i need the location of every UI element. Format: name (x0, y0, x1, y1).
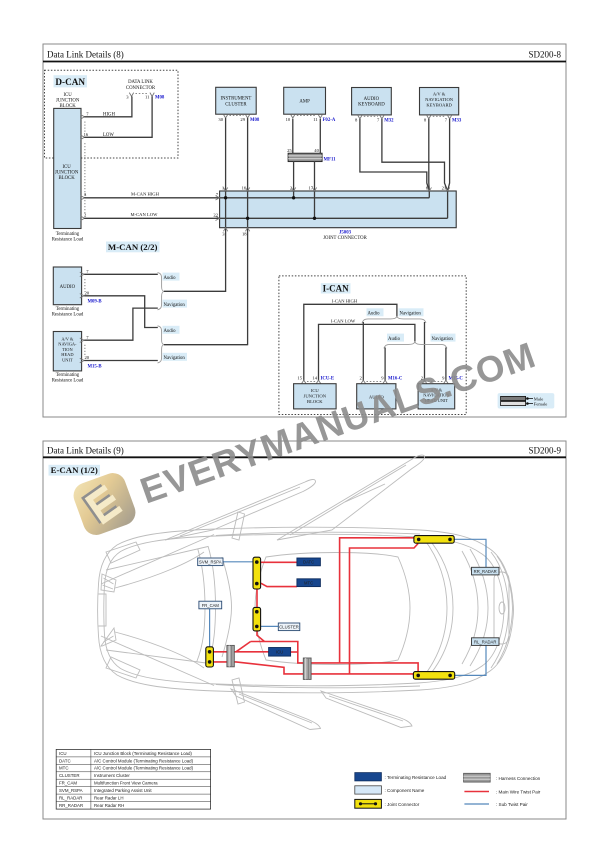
svg-text:40: 40 (314, 148, 319, 153)
svg-text:Resistance Load: Resistance Load (52, 313, 84, 318)
svg-text:: Sub Twist Pair: : Sub Twist Pair (496, 802, 528, 807)
svg-text:DATC: DATC (303, 560, 314, 565)
svg-text:11: 11 (313, 117, 318, 122)
svg-text:ICU-E: ICU-E (321, 376, 335, 381)
svg-text:11: 11 (145, 94, 150, 99)
svg-text:FR_CAM: FR_CAM (202, 603, 220, 608)
svg-text:8: 8 (424, 118, 427, 123)
svg-text:ICU Junction Block (Terminatin: ICU Junction Block (Terminating Resistan… (94, 751, 192, 756)
svg-text:JUNCTION: JUNCTION (55, 171, 79, 176)
svg-text:14: 14 (312, 375, 317, 380)
svg-text:A/C Control Module (Terminatin: A/C Control Module (Terminating Resistan… (94, 758, 194, 763)
svg-text:Data Link Details (8): Data Link Details (8) (47, 50, 124, 60)
svg-text:ICU: ICU (62, 165, 71, 170)
svg-text:DATC: DATC (59, 758, 71, 763)
svg-text:J5003: J5003 (339, 231, 352, 236)
svg-text:Audio: Audio (368, 312, 381, 317)
svg-text:MTC: MTC (59, 766, 69, 771)
svg-text:20: 20 (85, 290, 90, 295)
svg-text:JUNCTION: JUNCTION (304, 393, 327, 398)
svg-text:3: 3 (222, 231, 225, 236)
svg-text:30: 30 (218, 117, 223, 122)
svg-text:MTC: MTC (304, 581, 313, 586)
svg-text:Navigation: Navigation (164, 303, 186, 308)
svg-text:Navigation: Navigation (432, 337, 454, 342)
svg-text:A/V &: A/V & (433, 92, 446, 97)
svg-text:LOW: LOW (103, 133, 114, 138)
svg-text:2: 2 (84, 213, 87, 218)
svg-text:Navigation: Navigation (400, 312, 422, 317)
svg-text:JUNCTION: JUNCTION (56, 99, 80, 104)
svg-text:SD200-9: SD200-9 (528, 446, 561, 456)
svg-text:10: 10 (286, 117, 291, 122)
svg-text:2: 2 (360, 375, 363, 380)
svg-text:M08: M08 (250, 118, 260, 123)
svg-text:RL_RADAR: RL_RADAR (59, 796, 82, 801)
svg-text:: Component Name: : Component Name (385, 788, 425, 793)
svg-text:15: 15 (297, 375, 302, 380)
svg-text:16: 16 (84, 132, 89, 137)
svg-text:FR_CAM: FR_CAM (59, 781, 77, 786)
svg-text:ICU: ICU (59, 751, 67, 756)
svg-text:A/C Control Module (Terminatin: A/C Control Module (Terminating Resistan… (94, 766, 194, 771)
svg-text:KEYBOARD: KEYBOARD (426, 103, 452, 108)
svg-text:Multifunction Front View Camer: Multifunction Front View Camera (94, 781, 158, 786)
svg-text:ICU: ICU (63, 93, 72, 98)
svg-text:Terminating: Terminating (56, 307, 80, 312)
svg-text:Rear Radar RH: Rear Radar RH (94, 803, 124, 808)
svg-text:9: 9 (381, 375, 384, 380)
svg-text:Audio: Audio (164, 329, 177, 334)
svg-text:TION: TION (62, 347, 73, 352)
svg-text:Resistance Load: Resistance Load (52, 237, 84, 242)
svg-text:M-CAN LOW: M-CAN LOW (131, 212, 159, 217)
svg-text:7: 7 (377, 118, 380, 123)
svg-text:20: 20 (85, 355, 90, 360)
svg-text:Audio: Audio (388, 337, 401, 342)
svg-text:JOINT CONNECTOR: JOINT CONNECTOR (323, 236, 367, 241)
svg-text:CONNECTOR: CONNECTOR (126, 86, 156, 91)
svg-text:M33: M33 (452, 119, 462, 124)
svg-text:3: 3 (126, 94, 129, 99)
svg-text:M-CAN HIGH: M-CAN HIGH (131, 191, 160, 196)
svg-text:CLUSTER: CLUSTER (59, 773, 80, 778)
svg-text:: Harness Connection: : Harness Connection (496, 776, 541, 781)
svg-text:7: 7 (445, 118, 448, 123)
svg-text:Terminating: Terminating (56, 232, 80, 237)
svg-text:I-CAN LOW: I-CAN LOW (331, 319, 356, 324)
svg-text:ICU: ICU (276, 650, 283, 655)
svg-text:M-CAN (2/2): M-CAN (2/2) (108, 242, 158, 252)
svg-text:SVM_RSPA: SVM_RSPA (199, 560, 222, 565)
svg-text:ICU: ICU (311, 388, 320, 393)
svg-text:UNIT: UNIT (62, 358, 73, 363)
svg-text:Rear Radar LH: Rear Radar LH (94, 796, 124, 801)
svg-text:BLOCK: BLOCK (307, 399, 323, 404)
svg-text:F02-A: F02-A (323, 118, 336, 123)
svg-text:DATA LINK: DATA LINK (128, 80, 153, 85)
svg-text:AUDIO: AUDIO (60, 285, 76, 290)
svg-text:7: 7 (86, 111, 89, 116)
svg-text:25: 25 (287, 148, 292, 153)
svg-text:I-CAN: I-CAN (323, 283, 349, 293)
svg-text:29: 29 (240, 117, 245, 122)
svg-text:Integrated Parking Assist Unit: Integrated Parking Assist Unit (94, 788, 152, 793)
svg-text:KEYBOARD: KEYBOARD (358, 103, 385, 108)
svg-text:3: 3 (84, 192, 87, 197)
svg-text:: Main Wire Twist Pair: : Main Wire Twist Pair (496, 790, 541, 795)
svg-text:M08: M08 (155, 95, 165, 100)
svg-text:Resistance Load: Resistance Load (52, 379, 84, 384)
svg-text:D-CAN: D-CAN (55, 77, 85, 87)
svg-text:M15-B: M15-B (88, 364, 103, 369)
svg-text:HEAD: HEAD (61, 352, 73, 357)
svg-text:E-CAN (1/2): E-CAN (1/2) (51, 465, 98, 475)
svg-text:Audio: Audio (164, 276, 177, 281)
svg-text:7: 7 (86, 269, 89, 274)
svg-text:INSTRUMENT: INSTRUMENT (220, 97, 251, 102)
svg-text:RR_RADAR: RR_RADAR (59, 803, 83, 808)
svg-text:NAVIGATION: NAVIGATION (425, 97, 454, 102)
svg-text:18: 18 (242, 231, 247, 236)
svg-text:Female: Female (534, 401, 548, 406)
svg-text:NAVIGA-: NAVIGA- (58, 342, 77, 347)
svg-text:: Terminating Resistance Load: : Terminating Resistance Load (385, 775, 447, 780)
svg-text:I-CAN HIGH: I-CAN HIGH (332, 298, 358, 303)
svg-text:Terminating: Terminating (56, 373, 80, 378)
svg-text:CLUSTER: CLUSTER (279, 625, 299, 630)
svg-text:8: 8 (355, 118, 358, 123)
svg-text:Navigation: Navigation (164, 356, 186, 361)
svg-text:M32: M32 (384, 119, 394, 124)
svg-text:: Joint Connector: : Joint Connector (385, 802, 420, 807)
svg-text:7: 7 (86, 335, 89, 340)
svg-text:BLOCK: BLOCK (58, 176, 75, 181)
svg-text:RR_RADAR: RR_RADAR (474, 569, 497, 574)
svg-text:A/V &: A/V & (61, 336, 74, 341)
svg-text:RL_RADAR: RL_RADAR (474, 639, 496, 644)
svg-text:CLUSTER: CLUSTER (225, 102, 247, 107)
svg-text:AUDIO: AUDIO (364, 97, 380, 102)
svg-text:SD200-8: SD200-8 (528, 50, 561, 60)
svg-text:Data Link Details (9): Data Link Details (9) (47, 446, 124, 456)
svg-text:MF11: MF11 (324, 157, 337, 162)
svg-text:Instrument Cluster: Instrument Cluster (94, 773, 130, 778)
svg-text:SVM_RSPA: SVM_RSPA (59, 788, 83, 793)
svg-text:EVERYMANUALS.COM: EVERYMANUALS.COM (135, 334, 541, 512)
svg-text:HIGH: HIGH (103, 112, 116, 117)
svg-text:AMP: AMP (299, 100, 310, 105)
svg-text:M09-B: M09-B (88, 299, 103, 304)
